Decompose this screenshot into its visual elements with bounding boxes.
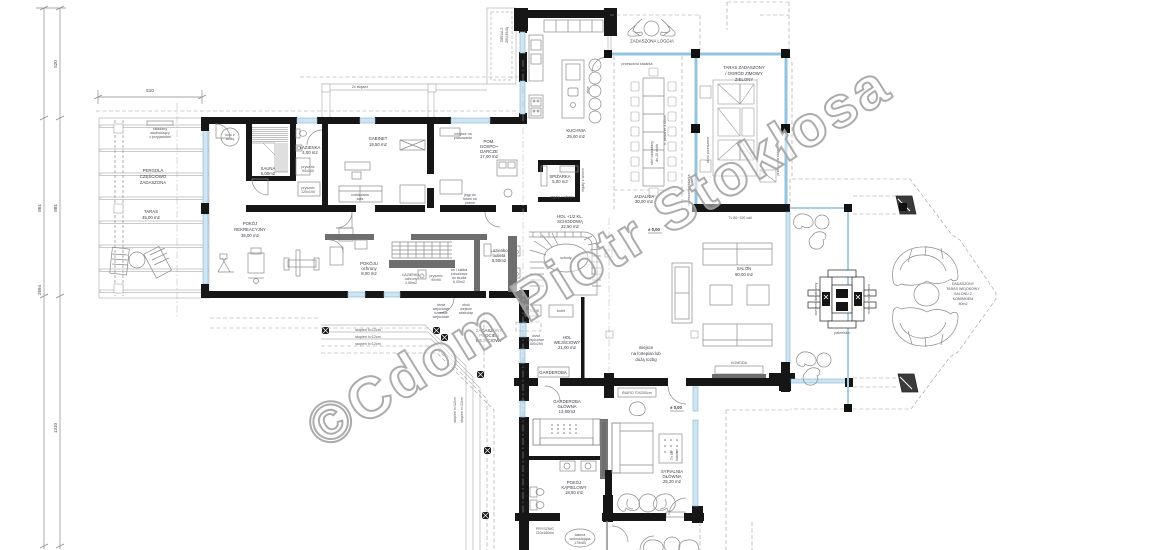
svg-text:łóżkiem: łóżkiem <box>675 449 679 461</box>
svg-text:stopień h=12cm: stopień h=12cm <box>355 328 380 332</box>
svg-text:864: 864 <box>37 204 42 212</box>
svg-text:stopień h=12cm: stopień h=12cm <box>460 397 464 422</box>
svg-text:17,00 m2: 17,00 m2 <box>480 154 499 159</box>
svg-text:regały z winem: regały z winem <box>581 168 585 192</box>
svg-text:21,00 m2: 21,00 m2 <box>558 345 577 350</box>
svg-text:45,00 m2: 45,00 m2 <box>142 215 161 220</box>
svg-text:884: 884 <box>53 204 58 212</box>
svg-text:175x80: 175x80 <box>574 541 586 545</box>
svg-text:PERGOLA: PERGOLA <box>143 168 164 173</box>
svg-text:25,20 m2: 25,20 m2 <box>663 479 682 484</box>
svg-text:ZADASZONA LOGGIA: ZADASZONA LOGGIA <box>630 39 674 44</box>
svg-text:stopień h=12cm: stopień h=12cm <box>355 335 380 339</box>
svg-text:110x180cm: 110x180cm <box>536 531 554 535</box>
svg-text:4,00 m2: 4,00 m2 <box>302 150 318 155</box>
svg-text:1310: 1310 <box>53 422 58 433</box>
svg-text:90x140: 90x140 <box>302 169 314 173</box>
svg-text:miejsce na drewno: miejsce na drewno <box>867 284 871 314</box>
svg-text:SIENIA Z: SIENIA Z <box>500 27 504 43</box>
svg-text:ZIELONY: ZIELONY <box>735 77 754 82</box>
svg-text:5,00 m2: 5,00 m2 <box>552 179 568 184</box>
svg-text:520: 520 <box>53 60 58 68</box>
svg-text:90,00 m2: 90,00 m2 <box>735 272 754 277</box>
svg-text:13,80m2: 13,80m2 <box>559 409 576 414</box>
svg-text:80m2: 80m2 <box>959 302 968 306</box>
svg-text:2x stojanż: 2x stojanż <box>352 85 368 89</box>
svg-text:120x190: 120x190 <box>301 190 315 194</box>
svg-text:3,50m2: 3,50m2 <box>405 281 417 285</box>
svg-text:510: 510 <box>146 88 154 93</box>
svg-text:ZIELENIĄ: ZIELENIĄ <box>505 26 509 43</box>
svg-text:miejsce: miejsce <box>639 345 654 350</box>
svg-text:stopień h=12cm: stopień h=12cm <box>355 342 380 346</box>
svg-text:ZADASZONA: ZADASZONA <box>140 180 166 185</box>
svg-text:18,50 m2: 18,50 m2 <box>565 490 584 495</box>
svg-text:GABINET: GABINET <box>369 136 388 141</box>
svg-text:150x250: 150x250 <box>529 342 543 346</box>
svg-text:SALON: SALON <box>737 266 752 271</box>
svg-text:GARDEROBA: GARDEROBA <box>539 370 567 375</box>
svg-text:stół rozkładany: stół rozkładany <box>650 141 654 165</box>
svg-text:prasowanie: prasowanie <box>454 136 472 140</box>
svg-text:6,00m2: 6,00m2 <box>453 280 465 284</box>
svg-text:na fortepian lub: na fortepian lub <box>631 351 661 356</box>
svg-text:h. pełzanie 3,00cm: h. pełzanie 3,00cm <box>663 115 667 145</box>
svg-text:TARAS WIDOKOWY: TARAS WIDOKOWY <box>946 287 980 291</box>
svg-text:kominek dwustronny: kominek dwustronny <box>814 282 818 315</box>
svg-text:REKREACYJNY: REKREACYJNY <box>234 227 266 232</box>
svg-text:5,50m2: 5,50m2 <box>492 258 507 263</box>
svg-text:SALONU Z: SALONU Z <box>954 292 973 296</box>
svg-text:przesuwna stolarka: przesuwna stolarka <box>622 62 653 66</box>
svg-text:POKÓJ: POKÓJ <box>243 221 258 226</box>
svg-text:/ OGRÓD ZIMOWY: / OGRÓD ZIMOWY <box>725 71 763 76</box>
svg-text:z przyjaciółmi: z przyjaciółmi <box>149 135 171 139</box>
svg-text:dużą rozbg: dużą rozbg <box>635 357 657 362</box>
svg-text:palenisko: palenisko <box>834 331 849 335</box>
svg-text:TARAS ZADASZONY: TARAS ZADASZONY <box>723 65 765 70</box>
svg-text:KOMODA: KOMODA <box>731 361 748 365</box>
svg-text:BIURO 70X200cm: BIURO 70X200cm <box>622 391 652 395</box>
svg-text:regały z winem: regały z winem <box>550 195 574 199</box>
svg-text:DADASZONY: DADASZONY <box>952 282 975 286</box>
svg-text:22,50 m2: 22,50 m2 <box>561 224 580 229</box>
svg-text:KUCHNIA: KUCHNIA <box>566 128 585 133</box>
svg-text:Tv 60": Tv 60" <box>670 449 674 460</box>
svg-text:± 0,00: ± 0,00 <box>670 405 683 410</box>
svg-text:CZĘŚCIOWO: CZĘŚCIOWO <box>140 174 167 179</box>
svg-text:Tv 80~100 cali: Tv 80~100 cali <box>728 216 752 220</box>
svg-text:pranie: pranie <box>465 201 475 205</box>
svg-text:stopień h=12cm: stopień h=12cm <box>453 397 457 422</box>
svg-text:5,00m2: 5,00m2 <box>261 171 276 176</box>
svg-text:do 20 osób: do 20 osób <box>655 144 659 162</box>
svg-text:25,00 m2: 25,00 m2 <box>567 134 586 139</box>
svg-text:2694: 2694 <box>37 284 42 295</box>
svg-text:TARAS: TARAS <box>144 209 158 214</box>
svg-text:sofa: sofa <box>357 197 364 201</box>
svg-text:8,00 m2: 8,00 m2 <box>361 271 377 276</box>
svg-text:19,50 m2: 19,50 m2 <box>369 142 388 147</box>
svg-text:35,00 m2: 35,00 m2 <box>241 233 260 238</box>
svg-text:90x90: 90x90 <box>431 278 441 282</box>
svg-text:KOMINKIEM: KOMINKIEM <box>953 297 974 301</box>
